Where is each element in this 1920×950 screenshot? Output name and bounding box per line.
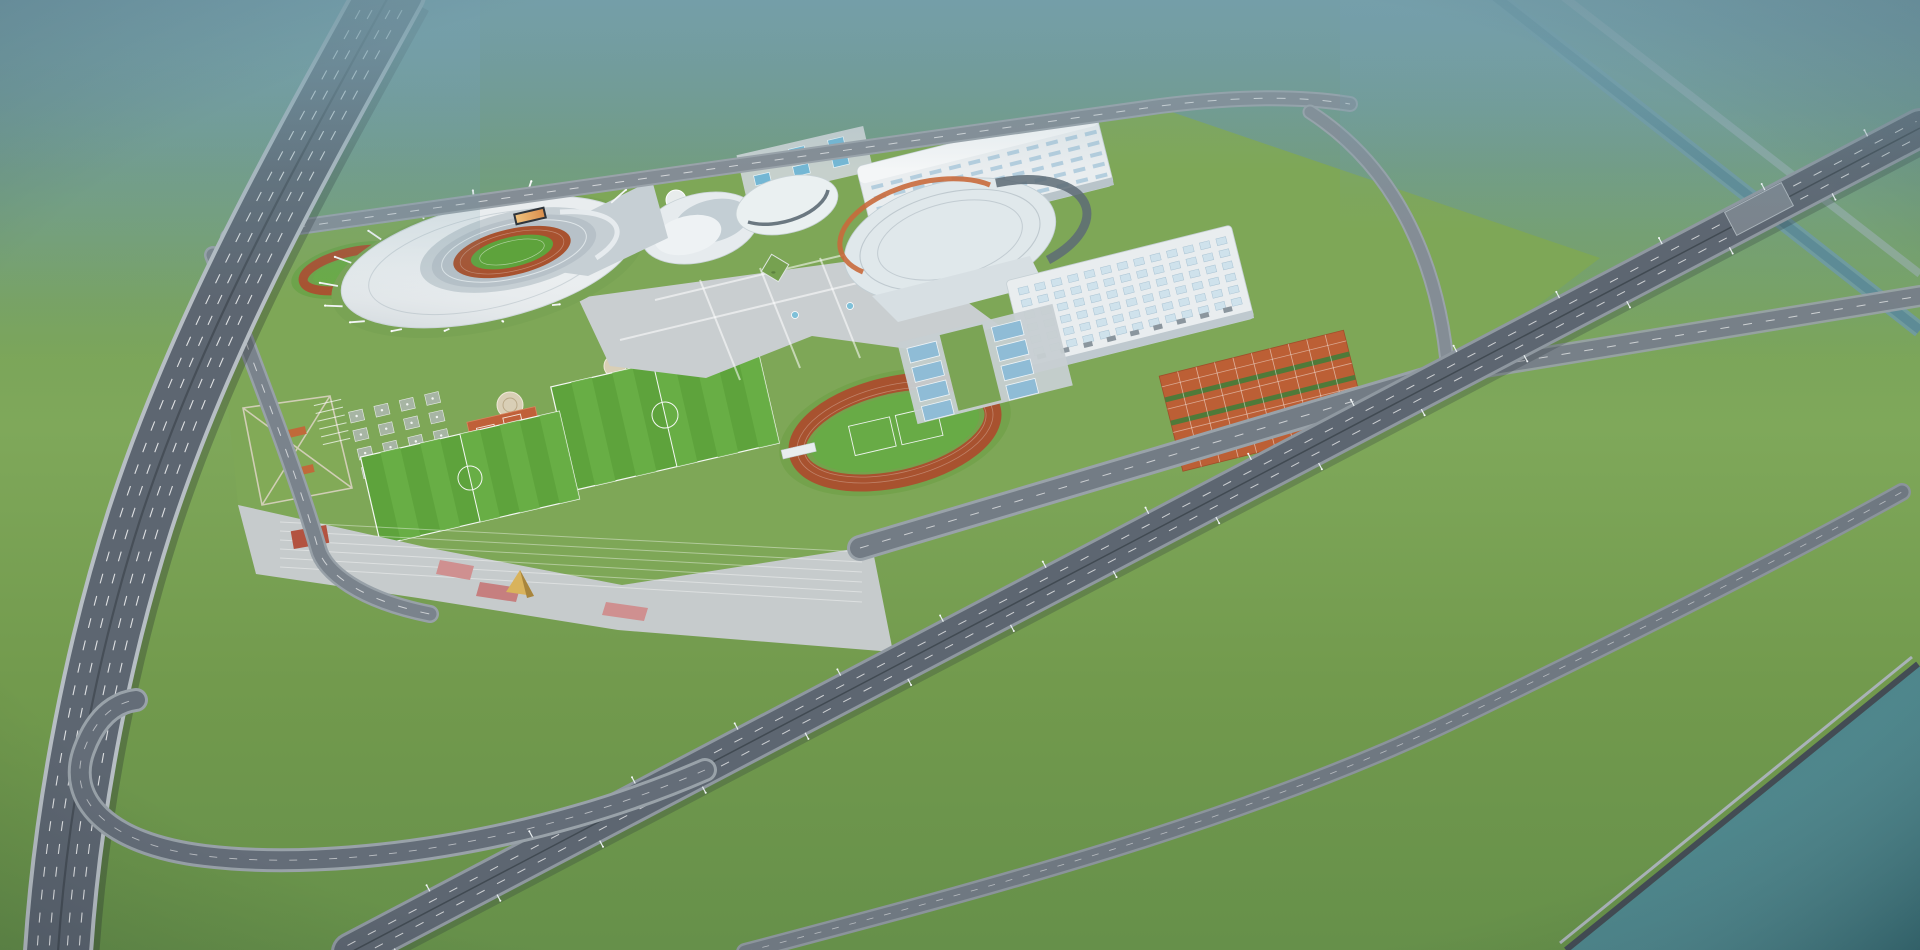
aerial-rendering bbox=[0, 0, 1920, 950]
scene-svg bbox=[0, 0, 1920, 950]
vignette bbox=[0, 0, 1920, 950]
